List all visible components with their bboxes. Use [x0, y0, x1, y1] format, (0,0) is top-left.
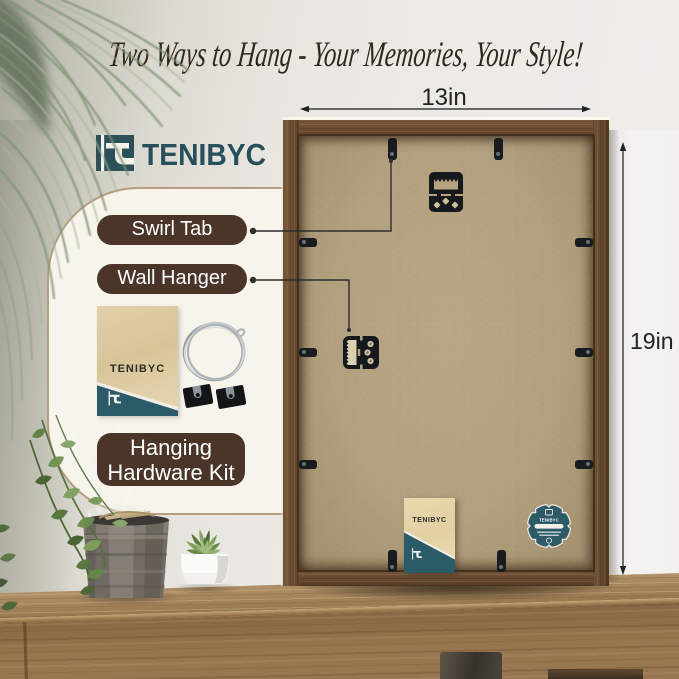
svg-text:TENIBYC: TENIBYC — [539, 518, 559, 523]
